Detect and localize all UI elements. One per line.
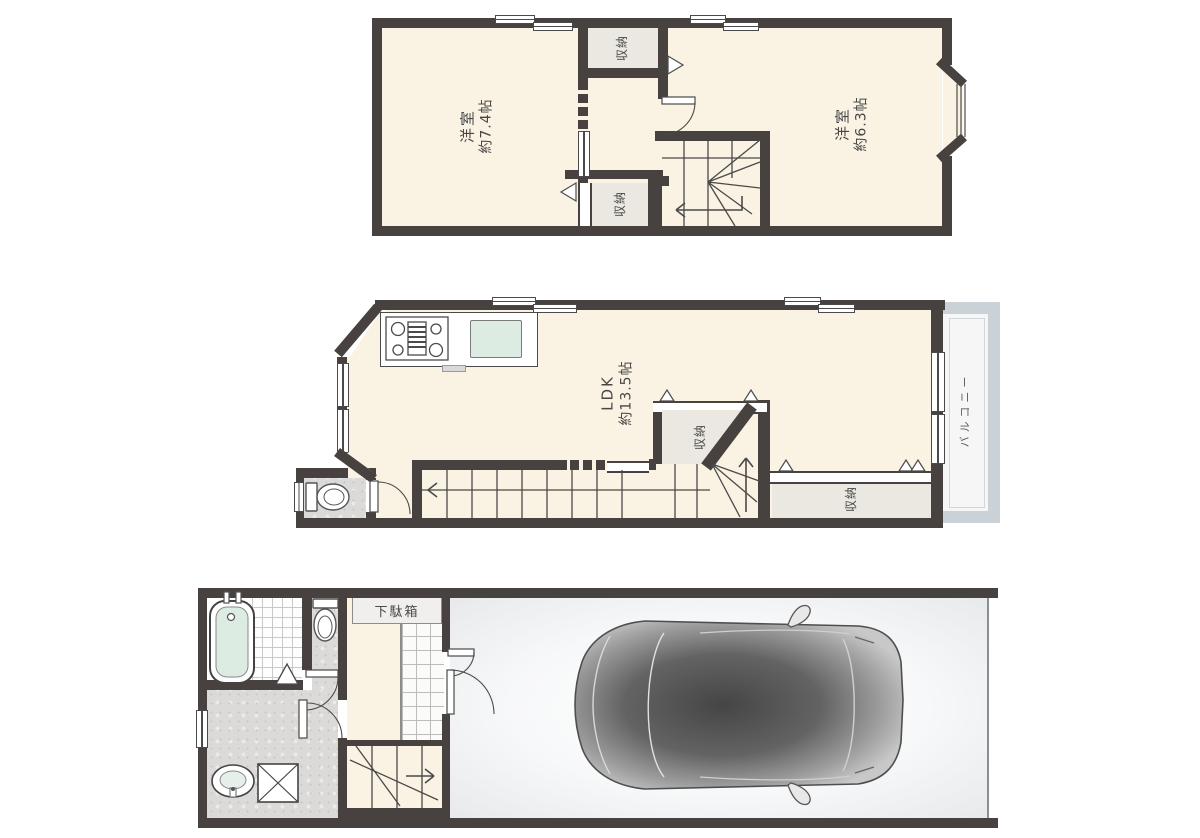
entrance-door [447,649,494,714]
room-label-ldk: LDK約13.5帖 [597,360,636,425]
bathtub [210,592,254,683]
door-arc [299,700,342,738]
closet-label: 収納 [843,486,859,512]
bay-window [939,61,965,159]
washing-machine-pan [258,764,298,802]
balcony-label: バルコニー [959,373,974,448]
angled-walls [337,307,380,479]
closet-label: 収納 [612,191,628,217]
toilet-1f [313,599,338,641]
folding-door-mark [276,664,298,684]
door-arc [370,481,410,514]
toilet-2f [306,483,349,511]
stove [386,317,448,360]
car [575,606,903,805]
room-label-west-room-6-3: 洋室約6.3帖 [832,96,871,151]
door-swing-mark [668,56,683,74]
door-swing-mark [561,183,576,201]
staircase-1f [350,746,438,808]
floor-plan: 洋室約7.4帖 洋室約6.3帖 収納 収納 LDK約13.5 [0,0,1200,838]
door-arc [662,97,695,135]
closet-label: 収納 [614,35,630,61]
room-label-west-room-7-4: 洋室約7.4帖 [457,98,496,153]
door-arc [305,670,338,710]
closet-label: 収納 [692,424,708,450]
staircase-3f [653,140,760,226]
washbasin [212,765,254,797]
